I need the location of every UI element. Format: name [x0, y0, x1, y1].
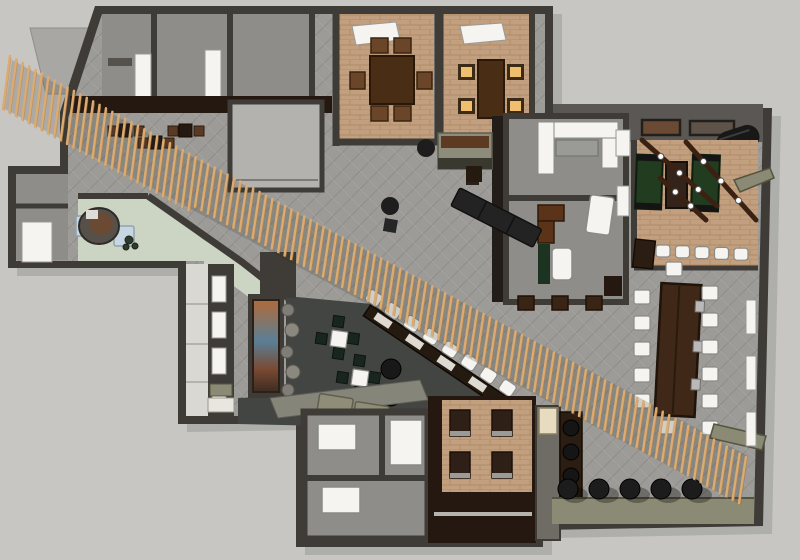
- counter: [108, 58, 132, 66]
- games-bar-ledge: [633, 239, 656, 269]
- light-stripe: [434, 512, 532, 516]
- light-floor-strip: [186, 264, 208, 416]
- lit-chair: [458, 98, 475, 114]
- mural-artwork: [253, 300, 279, 392]
- window-gallery: [186, 264, 234, 420]
- office-sofa: [585, 195, 614, 236]
- doorway: [22, 222, 52, 262]
- stool: [383, 218, 398, 233]
- nook-chair: [194, 126, 204, 136]
- communal-chair: [634, 342, 650, 356]
- dining-chair: [417, 72, 432, 89]
- east-window-panes: [746, 300, 756, 446]
- pillar-cap: [539, 408, 557, 434]
- booth-base: [492, 431, 512, 436]
- communal-chair: [634, 290, 650, 304]
- service-block: [492, 116, 626, 310]
- ottoman: [381, 359, 401, 379]
- service-rooms: [70, 14, 332, 113]
- light-bulb: [718, 178, 724, 184]
- light-bulb: [701, 159, 707, 165]
- lounge-table: [351, 369, 369, 387]
- bar-stool: [656, 245, 670, 257]
- cube-seat: [332, 315, 344, 327]
- round-stool: [651, 479, 671, 499]
- window-pane: [746, 300, 756, 334]
- communal-chair: [702, 394, 718, 408]
- lounge-chair: [552, 248, 572, 280]
- bar-stool: [734, 248, 748, 260]
- wall-stool: [518, 296, 534, 310]
- private-dining-a: [336, 14, 434, 140]
- light-bulb: [658, 154, 664, 160]
- dining-chair: [350, 72, 365, 89]
- dining-table: [478, 60, 504, 118]
- light-bulb: [695, 187, 701, 193]
- lit-chair: [458, 64, 475, 80]
- cabinet: [604, 276, 622, 296]
- floorplan-canvas: [0, 0, 800, 560]
- light-bulb: [736, 198, 742, 204]
- cube-seat: [336, 371, 348, 383]
- dining-chair: [394, 106, 411, 121]
- bar-stool: [695, 247, 709, 259]
- left-wing-room: [16, 174, 68, 262]
- wine-barrel: [563, 444, 579, 460]
- light-bulb: [672, 189, 678, 195]
- open-door: [205, 50, 221, 98]
- lit-chair: [507, 64, 524, 80]
- wall-stool: [586, 296, 602, 310]
- empty-room-floor: [230, 102, 322, 190]
- restroom-fixture: [318, 424, 356, 450]
- empty-room: [230, 102, 322, 190]
- bench-band: [552, 498, 754, 524]
- booth-dining: [428, 396, 536, 543]
- wine-barrels: [563, 420, 579, 484]
- bar-stool: [676, 246, 690, 258]
- communal-chair: [702, 313, 718, 327]
- cube-seat: [347, 332, 359, 344]
- server-station: [438, 133, 492, 169]
- window-pane: [212, 312, 226, 338]
- side-table: [466, 166, 482, 182]
- bench: [208, 398, 234, 412]
- reception-desk: [79, 208, 119, 244]
- restroom-fixture: [322, 487, 360, 513]
- skylight: [460, 23, 506, 44]
- games-room: [616, 130, 774, 269]
- window-pane: [746, 412, 756, 446]
- restrooms: [304, 412, 428, 539]
- dining-chair: [371, 38, 388, 53]
- restroom-fixture: [390, 420, 422, 465]
- prep-island: [556, 140, 598, 156]
- communal-chair: [702, 340, 718, 354]
- kitchen-counter: [554, 122, 618, 138]
- booth-base: [492, 473, 512, 478]
- round-stool: [589, 479, 609, 499]
- light-bulb: [677, 170, 683, 176]
- booth-base: [450, 473, 470, 478]
- booth-base: [450, 431, 470, 436]
- window-pane: [212, 276, 226, 302]
- communal-chair: [702, 286, 718, 300]
- cube-seat: [332, 347, 344, 359]
- round-table: [381, 197, 399, 215]
- open-door: [135, 54, 151, 98]
- light-bulb: [688, 203, 694, 209]
- round-stool: [558, 479, 578, 499]
- wall-stool: [552, 296, 568, 310]
- bench-cushion: [210, 384, 232, 396]
- office-desk: [538, 205, 564, 221]
- dining-table: [370, 56, 414, 104]
- communal-chair: [634, 368, 650, 382]
- cube-seat: [368, 371, 380, 383]
- bar-stool: [715, 247, 729, 259]
- round-stool: [620, 479, 640, 499]
- nook-table: [179, 124, 192, 137]
- communal-chair: [702, 367, 718, 381]
- open-door: [616, 130, 630, 156]
- dining-chair: [371, 106, 388, 121]
- lit-chair: [507, 98, 524, 114]
- cube-seat: [353, 354, 365, 366]
- green-rug: [538, 244, 550, 284]
- open-door: [617, 186, 629, 216]
- dining-chair: [394, 38, 411, 53]
- shuffleboard-table: [635, 155, 663, 210]
- round-table: [417, 139, 435, 157]
- framed-picture: [642, 120, 680, 135]
- floorplan-render: [0, 0, 800, 560]
- window-pane: [746, 356, 756, 390]
- window-pane: [212, 348, 226, 374]
- kitchen-counter: [538, 122, 554, 174]
- wine-barrel: [563, 420, 579, 436]
- communal-chair: [634, 316, 650, 330]
- communal-chair: [666, 262, 682, 276]
- cube-seat: [315, 332, 327, 344]
- nook-chair: [168, 126, 178, 136]
- lounge-table: [330, 330, 348, 348]
